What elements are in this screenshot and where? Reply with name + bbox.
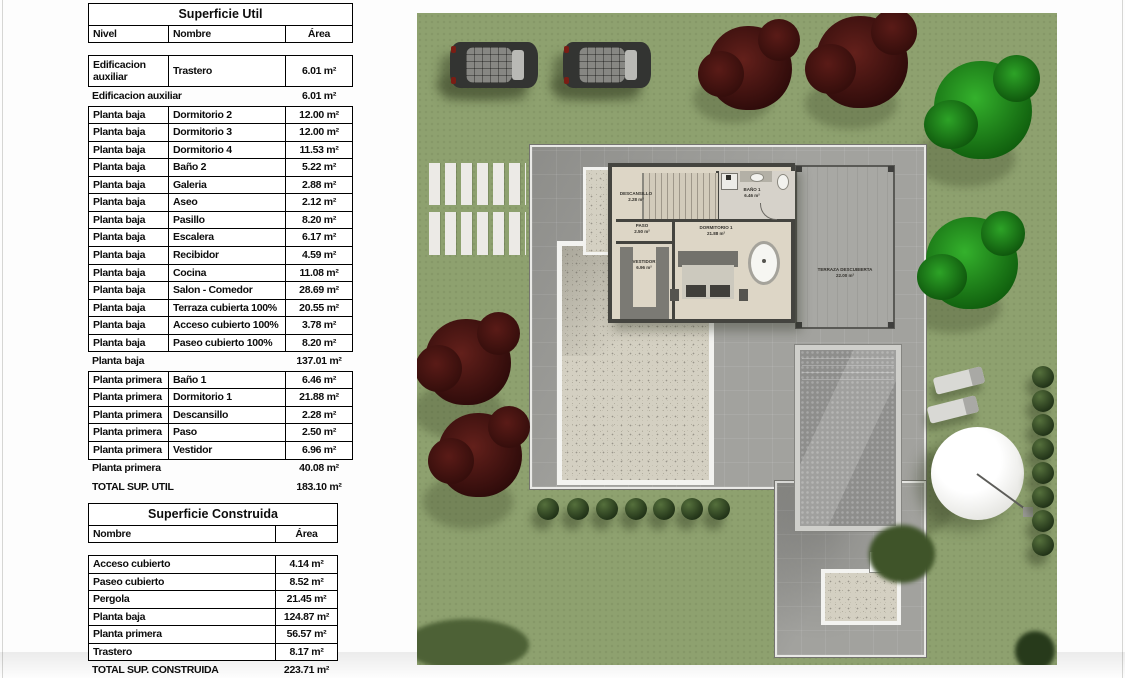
bush [1032, 462, 1054, 484]
table-row: Planta primeraVestidor6.96 m² [89, 441, 352, 459]
cell-nivel: Planta primera [89, 389, 169, 406]
pillar [796, 166, 802, 172]
table-row: Planta bajaTerraza cubierta 100%20.55 m² [89, 299, 352, 317]
cell-area: 6.01 m² [285, 88, 353, 105]
sun-lounger [933, 366, 986, 395]
table-row: Planta bajaPasillo8.20 m² [89, 211, 352, 229]
parasol [931, 427, 1024, 520]
cell-nombre: Dormitorio 4 [169, 142, 286, 159]
green-tree [934, 61, 1032, 159]
cell-nombre: Pasillo [169, 212, 286, 229]
cell-area: 3.78 m² [286, 317, 352, 334]
bush [537, 498, 559, 520]
cell-area: 6.96 m² [286, 442, 352, 459]
table-row: Planta bajaEscalera6.17 m² [89, 228, 352, 246]
sun-lounger [927, 395, 980, 424]
bush [567, 498, 589, 520]
car-taillight [564, 46, 569, 53]
nightstand [739, 289, 748, 301]
room-label-paso: PASO 2.50 m² [622, 223, 662, 236]
cell-label: Edificacion auxiliar [88, 88, 285, 105]
cell-nombre: Planta primera [89, 626, 276, 643]
bush [1032, 366, 1054, 388]
page-left-border [2, 0, 3, 678]
bush [708, 498, 730, 520]
cell-nombre: Planta baja [89, 609, 276, 626]
cell-label: Planta primera [88, 461, 285, 478]
cell-area: 12.00 m² [286, 124, 352, 141]
col-header-nombre: Nombre [89, 526, 276, 543]
total-row: TOTAL SUP. UTIL183.10 m² [88, 478, 353, 497]
bush [1015, 631, 1055, 665]
cell-nombre: Cocina [169, 265, 286, 282]
cell-nombre: Vestidor [169, 442, 286, 459]
cell-area: 6.46 m² [286, 372, 352, 389]
table-row: Planta primeraBaño 16.46 m² [89, 372, 352, 389]
car-windshield [512, 50, 524, 80]
table-row: Planta bajaAseo2.12 m² [89, 193, 352, 211]
subtotal-row: Edificacion auxiliar6.01 m² [88, 87, 353, 106]
cell-area: 183.10 m² [285, 479, 353, 496]
bush [1032, 510, 1054, 532]
table-row: Planta primeraPaso2.50 m² [89, 423, 352, 441]
pillow [686, 285, 706, 297]
cell-nivel: Planta baja [89, 317, 169, 334]
bush [681, 498, 703, 520]
table-row: Planta primera56.57 m² [89, 625, 337, 643]
sink [750, 173, 764, 182]
hedge [417, 619, 529, 665]
table-row: Planta bajaDormitorio 312.00 m² [89, 123, 352, 141]
superficie-construida-title: Superficie Construida [88, 503, 338, 526]
table-row: Planta bajaBaño 25.22 m² [89, 158, 352, 176]
room-label-descansillo: DESCANSILLO 2.28 m² [614, 191, 658, 204]
cell-nombre: Recibidor [169, 247, 286, 264]
table-row: Planta bajaAcceso cubierto 100%3.78 m² [89, 316, 352, 334]
table-row: Planta bajaSalon - Comedor28.69 m² [89, 281, 352, 299]
car-taillight [451, 46, 456, 53]
table-row: Paseo cubierto8.52 m² [89, 573, 337, 591]
cell-nombre: Escalera [169, 229, 286, 246]
nightstand [670, 289, 679, 301]
cell-area: 5.22 m² [286, 159, 352, 176]
superficie-construida-rows: Acceso cubierto4.14 m²Paseo cubierto8.52… [88, 555, 338, 678]
superficie-util-title: Superficie Util [88, 3, 353, 26]
bush [1032, 438, 1054, 460]
cell-area: 4.14 m² [276, 556, 337, 573]
cell-area: 223.71 m² [275, 662, 338, 678]
room-label-bano1: BAÑO 1 6.46 m² [730, 187, 774, 200]
cell-nivel: Planta baja [89, 107, 169, 124]
cell-label: Planta baja [88, 353, 285, 370]
bush-blob [869, 525, 935, 583]
cell-nombre: Dormitorio 3 [169, 124, 286, 141]
subtotal-row: Planta primera40.08 m² [88, 460, 353, 479]
cell-area: 11.08 m² [286, 265, 352, 282]
cell-nivel: Planta baja [89, 177, 169, 194]
cell-nombre: Salon - Comedor [169, 282, 286, 299]
cell-area: 56.57 m² [276, 626, 337, 643]
table-row: Planta bajaGaleria2.88 m² [89, 176, 352, 194]
room-label-vestidor: VESTIDOR 6.96 m² [622, 259, 666, 272]
cell-nivel: Planta baja [89, 335, 169, 352]
table-row: Pergola21.45 m² [89, 590, 337, 608]
shower-head [726, 175, 731, 180]
cell-nivel: Planta baja [89, 159, 169, 176]
col-header-nivel: Nivel [89, 26, 169, 43]
toilet [777, 174, 789, 190]
cell-area: 8.20 m² [286, 335, 352, 352]
wall [672, 222, 675, 323]
bush [653, 498, 675, 520]
maroon-tree [438, 413, 522, 497]
bush [1032, 486, 1054, 508]
car-taillight [564, 77, 569, 84]
car-roof [466, 47, 512, 83]
table-row: Planta primeraDormitorio 121.88 m² [89, 388, 352, 406]
cell-nombre: Dormitorio 2 [169, 107, 286, 124]
cell-nombre: Paseo cubierto 100% [169, 335, 286, 352]
page-right-border [1122, 0, 1123, 678]
cell-nombre: Galeria [169, 177, 286, 194]
cell-area: 6.01 m² [286, 56, 352, 86]
pergola-slats-row [429, 212, 526, 255]
cell-nivel: Planta baja [89, 300, 169, 317]
cell-nombre: Pergola [89, 591, 276, 608]
superficie-util-header: Nivel Nombre Área [88, 25, 353, 44]
maroon-tree [708, 26, 792, 110]
cell-area: 2.28 m² [286, 407, 352, 424]
cell-area: 12.00 m² [286, 107, 352, 124]
cell-nivel: Planta baja [89, 247, 169, 264]
pillar [888, 166, 894, 172]
superficie-construida-table: Superficie Construida Nombre Área Acceso… [88, 503, 338, 678]
cell-area: 4.59 m² [286, 247, 352, 264]
cell-area: 2.88 m² [286, 177, 352, 194]
pergola-slats-row [429, 163, 526, 205]
cell-nivel: Edificacion auxiliar [89, 56, 169, 86]
car-windshield [625, 50, 637, 80]
cell-nombre: Paseo cubierto [89, 574, 276, 591]
pool [795, 345, 901, 531]
cell-nivel: Planta primera [89, 442, 169, 459]
table-row: Planta baja124.87 m² [89, 608, 337, 626]
wardrobe [620, 307, 669, 319]
bush [596, 498, 618, 520]
subtotal-row: Planta baja137.01 m² [88, 352, 353, 371]
table-row: Edificacion auxiliarTrastero6.01 m² [89, 56, 352, 86]
cell-area: 8.20 m² [286, 212, 352, 229]
cell-area: 8.52 m² [276, 574, 337, 591]
superficie-util-rows: Edificacion auxiliarTrastero6.01 m²Edifi… [88, 55, 353, 497]
col-header-area: Área [276, 526, 337, 543]
green-tree [926, 217, 1018, 309]
cell-label: TOTAL SUP. CONSTRUIDA [88, 662, 275, 678]
parked-car [450, 42, 538, 88]
cell-label: TOTAL SUP. UTIL [88, 479, 285, 496]
room-label-terraza: TERRAZA DESCUBIERTA 22.00 m² [797, 267, 893, 280]
cell-area: 8.17 m² [276, 644, 337, 661]
cell-area: 28.69 m² [286, 282, 352, 299]
wall [616, 241, 675, 244]
cell-nivel: Planta baja [89, 265, 169, 282]
superficie-construida-header: Nombre Área [88, 525, 338, 544]
table-row: Planta primeraDescansillo2.28 m² [89, 406, 352, 424]
total-row: TOTAL SUP. CONSTRUIDA223.71 m² [88, 661, 338, 678]
cell-area: 137.01 m² [285, 353, 353, 370]
cell-area: 124.87 m² [276, 609, 337, 626]
cell-area: 21.45 m² [276, 591, 337, 608]
cell-nivel: Planta baja [89, 124, 169, 141]
cell-nombre: Descansillo [169, 407, 286, 424]
sink-counter [740, 171, 772, 182]
pillar [888, 322, 894, 328]
bathtub [748, 241, 780, 285]
cell-nombre: Acceso cubierto 100% [169, 317, 286, 334]
table-row: Planta bajaDormitorio 212.00 m² [89, 107, 352, 124]
maroon-tree [425, 319, 511, 405]
col-header-nombre: Nombre [169, 26, 286, 43]
cell-nivel: Planta baja [89, 282, 169, 299]
bush [1032, 534, 1054, 556]
maroon-tree [816, 16, 908, 108]
cell-area: 2.12 m² [286, 194, 352, 211]
cell-area: 6.17 m² [286, 229, 352, 246]
bush [1032, 390, 1054, 412]
cell-nivel: Planta baja [89, 142, 169, 159]
car-roof [579, 47, 625, 83]
cell-area: 11.53 m² [286, 142, 352, 159]
car-taillight [451, 77, 456, 84]
cell-nivel: Planta baja [89, 194, 169, 211]
table-row: Planta bajaDormitorio 411.53 m² [89, 141, 352, 159]
parasol-base [1023, 507, 1033, 517]
cell-nivel: Planta baja [89, 212, 169, 229]
cell-nombre: Paso [169, 424, 286, 441]
cell-nivel: Planta primera [89, 424, 169, 441]
cell-nombre: Baño 2 [169, 159, 286, 176]
table-row: Planta bajaRecibidor4.59 m² [89, 246, 352, 264]
cell-nivel: Planta baja [89, 229, 169, 246]
cell-area: 21.88 m² [286, 389, 352, 406]
house-floorplan: DESCANSILLO 2.28 m² BAÑO 1 6.46 m² PASO … [608, 163, 795, 323]
pool-glare [800, 350, 896, 526]
table-row: Planta bajaCocina11.08 m² [89, 264, 352, 282]
parked-car [563, 42, 651, 88]
terraza-descubierta: TERRAZA DESCUBIERTA 22.00 m² [795, 165, 895, 329]
cell-nombre: Trastero [169, 56, 286, 86]
room-label-dormitorio1: DORMITORIO 1 21.88 m² [688, 225, 744, 238]
cell-area: 20.55 m² [286, 300, 352, 317]
wall [616, 219, 795, 222]
cell-nombre: Acceso cubierto [89, 556, 276, 573]
site-plan: TERRAZA DESCUBIERTA 22.00 m² [417, 13, 1057, 665]
table-row: Planta bajaPaseo cubierto 100%8.20 m² [89, 334, 352, 352]
cell-nombre: Aseo [169, 194, 286, 211]
cell-area: 40.08 m² [285, 461, 353, 478]
cell-nombre: Trastero [89, 644, 276, 661]
cell-nombre: Terraza cubierta 100% [169, 300, 286, 317]
pillar [796, 322, 802, 328]
superficie-util-table: Superficie Util Nivel Nombre Área Edific… [88, 3, 353, 497]
cell-nivel: Planta primera [89, 407, 169, 424]
pillow [710, 285, 730, 297]
col-header-area: Área [286, 26, 352, 43]
cell-nombre: Baño 1 [169, 372, 286, 389]
table-row: Acceso cubierto4.14 m² [89, 556, 337, 573]
cell-nivel: Planta primera [89, 372, 169, 389]
cell-nombre: Dormitorio 1 [169, 389, 286, 406]
plan-page: Superficie Util Nivel Nombre Área Edific… [0, 0, 1125, 678]
table-row: Trastero8.17 m² [89, 643, 337, 661]
parasol-pole [976, 473, 1027, 511]
bush [1032, 414, 1054, 436]
cell-area: 2.50 m² [286, 424, 352, 441]
bush [625, 498, 647, 520]
